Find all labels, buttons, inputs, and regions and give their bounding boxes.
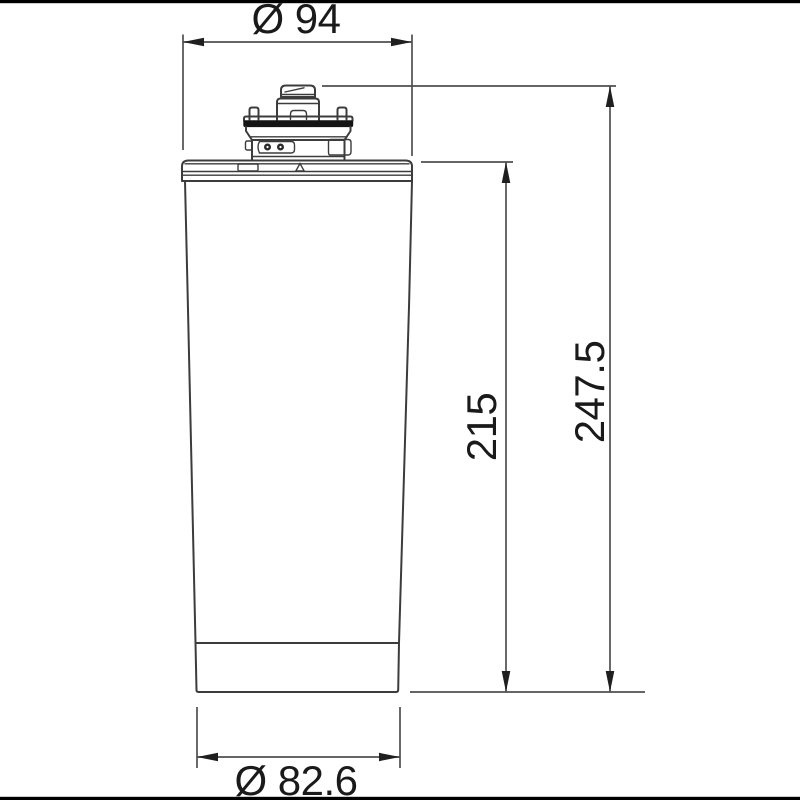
connector-head <box>244 86 353 161</box>
arrowhead-up <box>606 86 615 107</box>
head-hole-left-center <box>266 146 268 148</box>
dim-bottom-diameter-label: Ø 82.6 <box>234 757 357 800</box>
canister-lid <box>182 161 412 182</box>
lid-tab <box>238 164 258 171</box>
filter-cartridge-drawing <box>182 86 412 693</box>
drawing-canvas: Ø 94 247.5 215 Ø 82.6 <box>0 0 800 800</box>
knob-cap-notch <box>285 88 304 92</box>
lid-triangle-marker <box>296 164 304 172</box>
body-outline <box>185 181 412 692</box>
head-pocket <box>258 142 295 154</box>
dimension-drawing-svg: Ø 94 247.5 215 Ø 82.6 <box>0 0 800 800</box>
arrowhead-right <box>379 753 400 761</box>
arrowhead-down <box>606 671 615 692</box>
dim-body-height: 215 <box>421 162 513 692</box>
arrowhead-right <box>391 38 412 46</box>
top-border-bar <box>0 0 800 3</box>
arrowhead-down <box>502 671 511 692</box>
right-latch-tab <box>329 140 352 156</box>
arrowhead-left <box>183 38 204 46</box>
right-pin <box>338 108 347 120</box>
dim-top-diameter-label: Ø 94 <box>251 0 340 42</box>
head-hole-right-center <box>279 146 281 148</box>
collar-flange <box>246 127 351 140</box>
dim-total-height: 247.5 <box>322 86 616 692</box>
canister-body <box>185 181 412 692</box>
dim-bottom-diameter: Ø 82.6 <box>197 707 400 800</box>
arrowhead-up <box>502 162 511 183</box>
dim-top-diameter: Ø 94 <box>183 0 412 156</box>
knob-handle <box>291 111 307 120</box>
seal-band <box>244 121 353 127</box>
dim-total-height-label: 247.5 <box>566 341 613 444</box>
arrowhead-left <box>197 753 218 761</box>
left-pin <box>250 108 259 120</box>
dim-body-height-label: 215 <box>458 393 505 462</box>
